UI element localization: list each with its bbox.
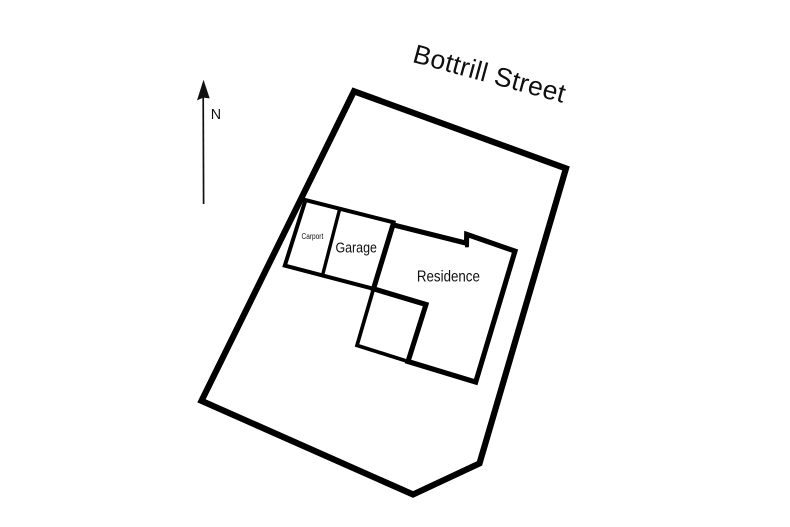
svg-text:Residence: Residence <box>417 269 480 286</box>
svg-text:N: N <box>211 107 221 123</box>
svg-text:Carport: Carport <box>302 232 324 241</box>
svg-text:Garage: Garage <box>335 240 377 256</box>
svg-text:Bottrill Street: Bottrill Street <box>410 39 570 109</box>
